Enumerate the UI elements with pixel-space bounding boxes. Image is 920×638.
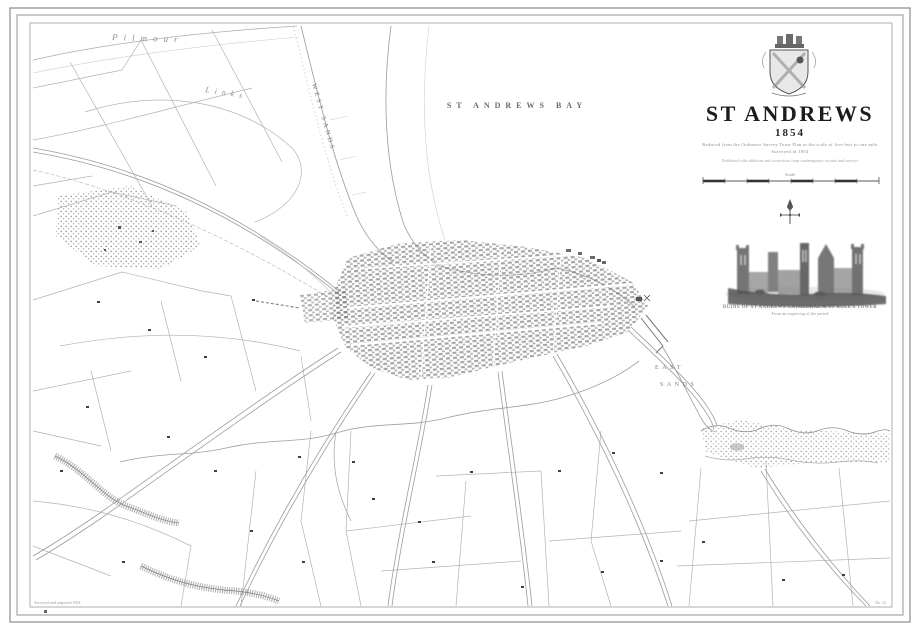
braes-woodland [55,456,279,601]
north-arrow-icon [780,199,800,224]
map-sheet: ST ANDREWS BAY WEST SANDS EAST SANDS Pil… [0,0,920,638]
vignette-caption-2: From an engraving of the period [772,311,830,316]
label-west-sands: WEST SANDS [310,83,336,153]
coat-of-arms-icon [762,34,815,96]
cathedral-vignette [725,243,886,307]
label-sands: SANDS [660,382,697,388]
vignette-caption-1: RUINS OF ST ANDREWS CATHEDRAL & ST RULE'… [723,305,877,310]
harbour-pier [641,315,668,353]
map-fineprint: Published with additions and corrections… [722,158,858,163]
map-subtitle-1: Reduced from the Ordnance Survey Town Pl… [702,142,878,147]
estate-woodland [56,186,201,269]
imprint-right: No. 12 [875,600,886,605]
imprint-left: Surveyed and engraved 1854 [34,600,81,605]
map-subtitle-2: Surveyed in 1854 [771,149,809,154]
map-canvas: ST ANDREWS BAY WEST SANDS EAST SANDS Pil… [0,0,920,638]
town-buildings [300,232,660,387]
map-title: ST ANDREWS [706,101,874,126]
title-block: ST ANDREWS 1854 Reduced from the Ordnanc… [702,34,886,316]
cliffs-east [701,420,890,468]
scale-label: Scale [785,172,795,177]
label-pilmour: Pilmour [111,32,184,45]
imprints: Surveyed and engraved 1854 No. 12 [34,600,886,605]
streams [120,361,639,521]
scale-bar: Scale [703,172,879,184]
label-east: EAST [655,365,684,371]
map-year: 1854 [775,127,805,139]
label-st-andrews-bay: ST ANDREWS BAY [447,101,587,110]
